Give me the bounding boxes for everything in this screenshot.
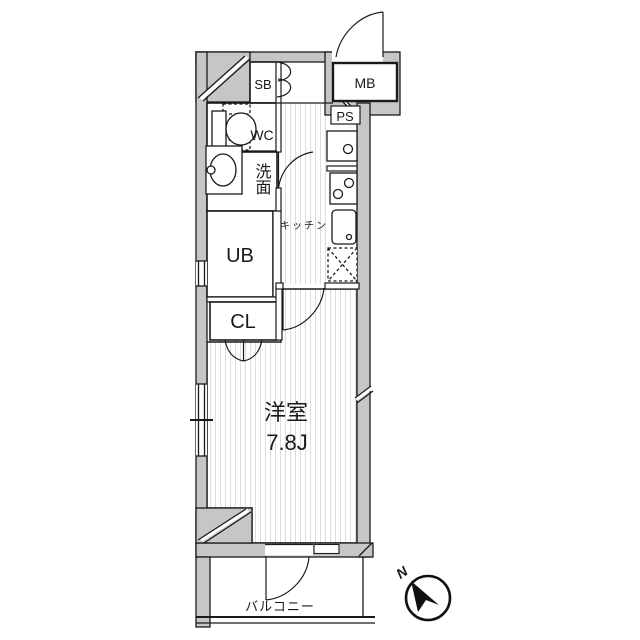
hall-partition-lower bbox=[276, 188, 281, 211]
laundry-tap-icon bbox=[344, 145, 353, 154]
label-pipe-space: PS bbox=[336, 109, 354, 124]
room-top-wall bbox=[325, 283, 359, 289]
compass-north-icon: N bbox=[393, 562, 450, 620]
label-wc: WC bbox=[250, 127, 273, 143]
stove bbox=[330, 173, 357, 204]
label-western-room: 洋室 bbox=[264, 400, 308, 425]
left-wall bbox=[196, 52, 207, 557]
faucet-icon bbox=[347, 235, 352, 240]
right-wall bbox=[357, 103, 370, 557]
burner-icon bbox=[334, 190, 343, 199]
balcony-window bbox=[314, 545, 339, 554]
kitchen-sink bbox=[332, 210, 356, 244]
entrance-opening bbox=[332, 51, 383, 64]
label-meter-box: MB bbox=[355, 75, 376, 91]
label-washroom: 洗面 bbox=[253, 163, 272, 195]
kitchen-fixtures bbox=[327, 131, 357, 281]
label-balcony: バルコニー bbox=[245, 599, 315, 614]
label-kitchen: キッチン bbox=[280, 220, 328, 232]
bath-window bbox=[196, 261, 207, 286]
label-closet: CL bbox=[230, 311, 256, 333]
hall-partition-upper bbox=[276, 62, 281, 152]
balcony-door bbox=[265, 545, 313, 601]
counter-edge bbox=[327, 166, 357, 171]
kitchen-floor bbox=[281, 104, 327, 284]
laundry-space bbox=[327, 131, 357, 161]
refrigerator-space bbox=[328, 248, 357, 281]
entrance-door bbox=[336, 12, 383, 57]
floor-plan-drawing: SB MB PS WC 洗面 UB CL キッチン 洋室 7.8J バルコニー … bbox=[0, 0, 640, 640]
room-top-wall-stub bbox=[276, 283, 283, 289]
label-unit-bath: UB bbox=[226, 245, 254, 267]
burner-icon bbox=[345, 179, 354, 188]
label-room-size: 7.8J bbox=[266, 430, 308, 455]
closet-right-wall bbox=[276, 288, 282, 340]
label-north: N bbox=[393, 562, 411, 581]
washbasin-icon bbox=[206, 146, 242, 194]
floor-plan-page: SB MB PS WC 洗面 UB CL キッチン 洋室 7.8J バルコニー … bbox=[0, 0, 640, 640]
label-shoe-box: SB bbox=[254, 77, 271, 92]
